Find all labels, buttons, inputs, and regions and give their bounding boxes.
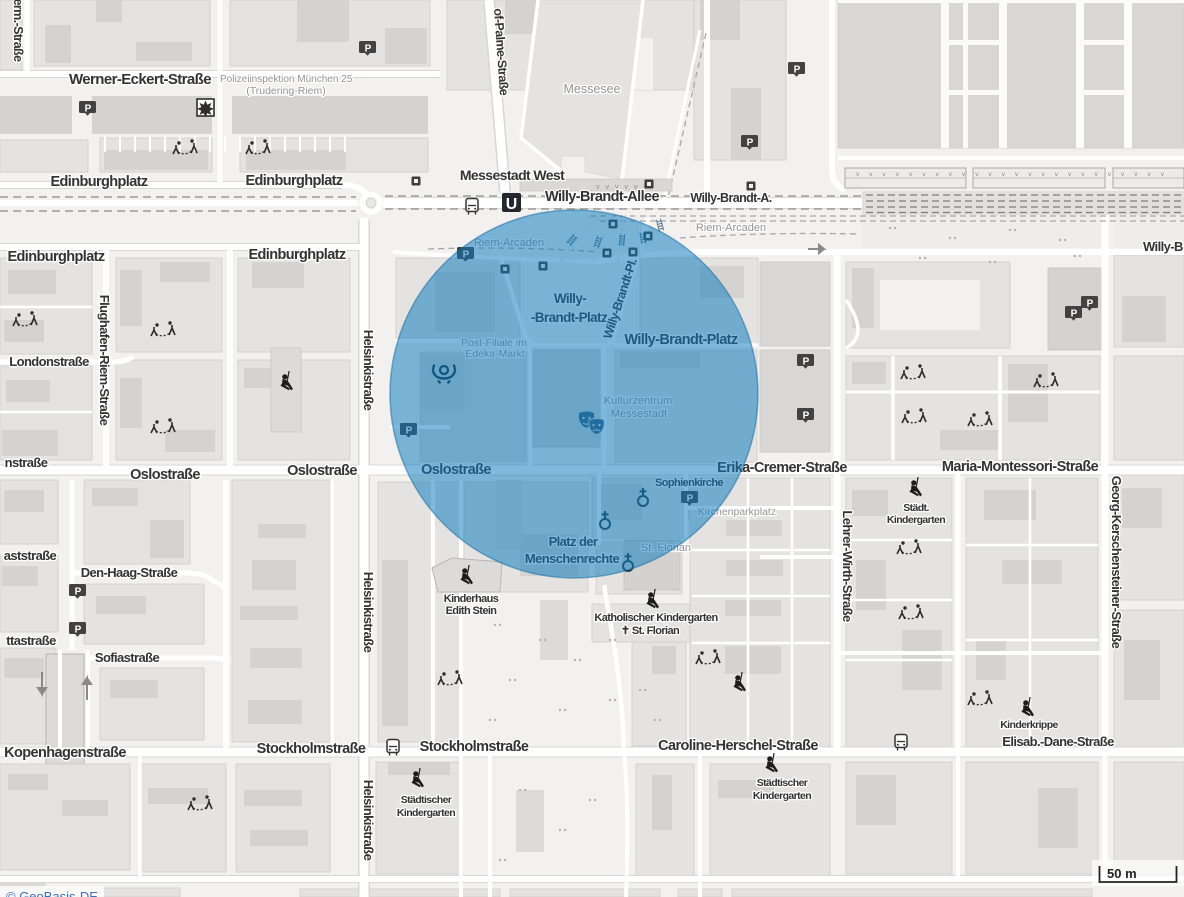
svg-text:Lehrer-Wirth-Straße: Lehrer-Wirth-Straße (840, 510, 855, 622)
svg-text:Oslostraße: Oslostraße (130, 467, 200, 483)
svg-text:Stockholmstraße: Stockholmstraße (257, 741, 366, 757)
svg-text:(Trudering-Riem): (Trudering-Riem) (246, 85, 326, 97)
svg-text:Messestadt West: Messestadt West (460, 167, 565, 183)
svg-text:Kopenhagenstraße: Kopenhagenstraße (4, 745, 126, 761)
svg-text:aststraße: aststraße (4, 548, 57, 563)
svg-text:Kindergarten: Kindergarten (753, 790, 811, 802)
svg-text:Kinderkrippe: Kinderkrippe (1000, 719, 1058, 731)
svg-text:Elisab.-Dane-Straße: Elisab.-Dane-Straße (1002, 734, 1114, 749)
svg-text:Helsinkistraße: Helsinkistraße (361, 780, 376, 861)
svg-text:Maria-Montessori-Straße: Maria-Montessori-Straße (942, 459, 1099, 475)
svg-text:Kinderhaus: Kinderhaus (444, 593, 499, 605)
svg-text:Den-Haag-Straße: Den-Haag-Straße (81, 565, 178, 580)
svg-text:Helsinkistraße: Helsinkistraße (361, 330, 376, 411)
svg-text:© GeoBasis-DE: © GeoBasis-DE (6, 889, 98, 897)
svg-text:Willy-Brandt-A.: Willy-Brandt-A. (690, 191, 771, 205)
svg-text:Edinburghplatz: Edinburghplatz (7, 249, 104, 265)
svg-text:Edinburghplatz: Edinburghplatz (50, 174, 147, 190)
svg-text:Stockholmstraße: Stockholmstraße (420, 739, 529, 755)
svg-text:Sofiastraße: Sofiastraße (95, 650, 160, 665)
svg-text:Polizeiinspektion München 25: Polizeiinspektion München 25 (220, 74, 353, 85)
svg-text:Oslostraße: Oslostraße (287, 463, 357, 479)
svg-text:50 m: 50 m (1107, 866, 1137, 881)
svg-text:Edinburghplatz: Edinburghplatz (248, 247, 345, 263)
svg-text:Katholischer Kindergarten: Katholischer Kindergarten (594, 612, 718, 624)
svg-text:Willy-Brandt-Allee: Willy-Brandt-Allee (545, 189, 659, 205)
svg-text:Edith Stein: Edith Stein (446, 605, 498, 617)
svg-text:Städtischer: Städtischer (757, 777, 808, 789)
svg-text:Caroline-Herschel-Straße: Caroline-Herschel-Straße (658, 738, 818, 754)
svg-text:Messesee: Messesee (564, 82, 621, 96)
svg-text:Kindergarten: Kindergarten (887, 514, 945, 526)
svg-text:U: U (506, 196, 518, 213)
svg-text:Riem-Arcaden: Riem-Arcaden (696, 222, 766, 234)
svg-text:erm.-Straße: erm.-Straße (11, 0, 25, 62)
svg-text:ttastraße: ttastraße (6, 633, 56, 648)
svg-text:Georg-Kerschensteiner-Straße: Georg-Kerschensteiner-Straße (1109, 476, 1124, 649)
svg-text:Städtischer: Städtischer (401, 794, 452, 806)
svg-text:vvvvvvvvvvvvvvvvvvvvvvvv: vvvvvvvvvvvvvvvvvvvvvvvv (856, 171, 1174, 178)
svg-text:Willy-B: Willy-B (1143, 239, 1183, 254)
svg-text:Flughafen-Riem-Straße: Flughafen-Riem-Straße (97, 295, 112, 426)
svg-text:Helsinkistraße: Helsinkistraße (361, 572, 376, 653)
svg-text:Werner-Eckert-Straße: Werner-Eckert-Straße (69, 71, 211, 88)
svg-text:Edinburghplatz: Edinburghplatz (245, 173, 342, 189)
svg-text:Städt.: Städt. (903, 502, 929, 514)
svg-text:nstraße: nstraße (5, 455, 48, 470)
svg-text:✝ St. Florian: ✝ St. Florian (621, 625, 680, 637)
svg-text:Londonstraße: Londonstraße (9, 354, 89, 369)
svg-text:Kindergarten: Kindergarten (397, 807, 455, 819)
